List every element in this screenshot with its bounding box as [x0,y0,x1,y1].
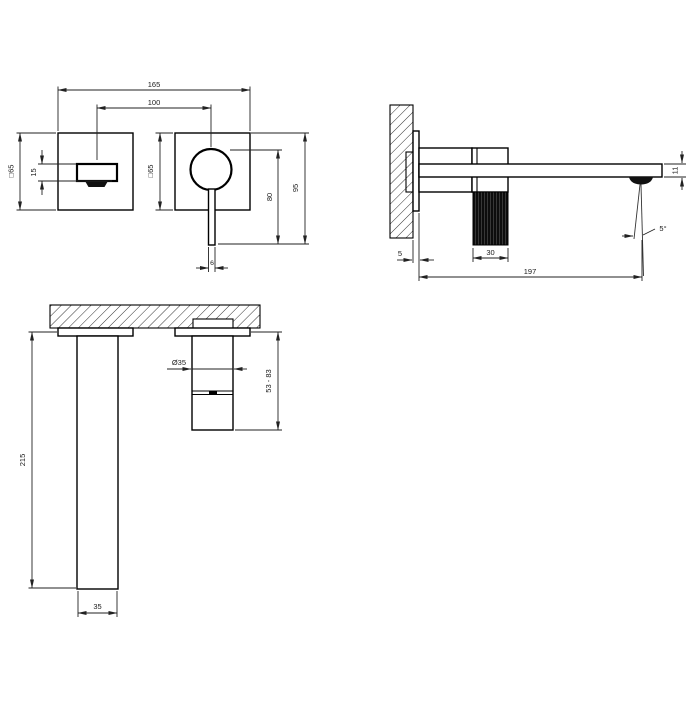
rough-in-view: Ø35 53 - 83 215 35 [18,305,282,617]
spout-aerator [85,181,108,187]
dim-lever-drop: 80 [265,193,274,201]
cartridge-notch [209,392,217,395]
dim-centers-group: 100 [97,98,211,160]
dim-lever-width-group: 6 [196,247,228,272]
dim-spray-angle-group: 5° [622,224,667,236]
cartridge-body [192,336,233,430]
dim-centers: 100 [148,98,161,107]
dim-handle-plate-size: □65 [146,165,155,178]
water-stream-angled-line [634,185,640,240]
supply-body [77,336,118,589]
in-wall-housing [193,319,233,329]
handle-lever [209,189,216,245]
dim-spout-tip-height-group: 11 [664,151,686,190]
dim-supply-width-group: 35 [78,591,117,617]
dim-grip-depth-group: 30 [473,248,508,262]
handle-flange [175,328,250,336]
technical-drawing-canvas: 165 100 □65 15 □65 [0,0,700,700]
side-view: 5° 5 30 197 11 [390,105,686,281]
handle-rosette [191,149,232,190]
dim-cartridge-depth-range-group: 53 - 83 [235,332,282,430]
dim-overall-width: 165 [148,80,161,89]
spout-tip-aerator [629,177,653,185]
dim-supply-length: 215 [18,454,27,467]
dim-spout-tip-height: 11 [671,167,680,175]
wall-section [390,105,413,238]
dim-grip-depth: 30 [486,248,494,257]
faucet-dimension-drawing: 165 100 □65 15 □65 [0,0,700,700]
dim-handle-plate-size-group: □65 [146,133,173,210]
dim-spray-angle: 5° [659,224,666,233]
dim-spout-plate-size: □65 [7,165,16,178]
spout-wall-plate [58,133,133,210]
wall-plate-side [413,131,419,211]
knurled-grip [473,192,508,245]
dim-spout-reach: 197 [524,267,537,276]
dim-spout-height: 15 [29,168,38,176]
dim-cartridge-depth-range: 53 - 83 [264,369,273,392]
dim-supply-width: 35 [93,602,101,611]
dim-cartridge-diameter: Ø35 [172,358,186,367]
dim-spout-height-group: 15 [29,150,112,195]
dim-spout-reach-group: 197 [419,240,642,281]
dim-lever-width: 6 [210,260,214,267]
dim-supply-length-group: 215 [18,332,76,588]
dim-plate-to-lever-tip: 95 [291,184,300,192]
dim-plate-offset: 5 [398,249,402,258]
spout-flange [58,328,133,336]
spout-bar [419,164,662,177]
front-view: 165 100 □65 15 □65 [7,80,310,272]
spout-front [77,164,117,181]
